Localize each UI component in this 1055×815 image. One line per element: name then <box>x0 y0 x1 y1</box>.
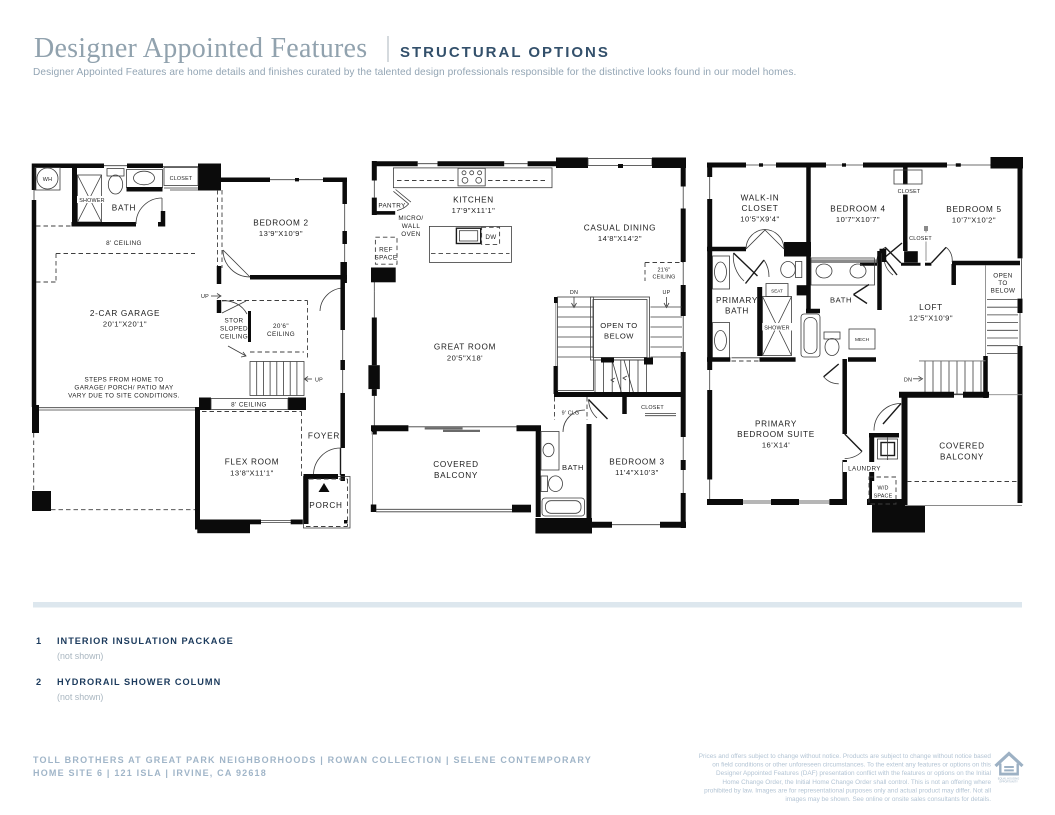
svg-text:BEDROOM 5: BEDROOM 5 <box>946 205 1001 214</box>
svg-text:BEDROOM 4: BEDROOM 4 <box>830 205 885 214</box>
svg-text:Designer Appointed Features (D: Designer Appointed Features (DAF) presen… <box>716 770 991 777</box>
svg-text:WALK-IN: WALK-IN <box>741 194 780 203</box>
svg-text:BEDROOM SUITE: BEDROOM SUITE <box>737 430 815 439</box>
svg-text:REF: REF <box>379 247 393 254</box>
svg-text:UP: UP <box>663 290 671 296</box>
svg-text:8' CEILING: 8' CEILING <box>106 240 142 247</box>
svg-text:10'5"X9'4": 10'5"X9'4" <box>740 215 779 224</box>
svg-text:GARAGE/ PORCH/ PATIO MAY: GARAGE/ PORCH/ PATIO MAY <box>74 385 174 392</box>
svg-text:UP: UP <box>315 378 323 384</box>
svg-text:20'5"X18': 20'5"X18' <box>447 354 483 363</box>
svg-text:COVERED: COVERED <box>433 460 478 469</box>
svg-text:INTERIOR INSULATION PACKAGE: INTERIOR INSULATION PACKAGE <box>57 636 234 646</box>
svg-text:CLOSET: CLOSET <box>909 236 932 242</box>
svg-text:12'5"X10'9": 12'5"X10'9" <box>909 314 953 323</box>
svg-text:OPPORTUNITY: OPPORTUNITY <box>999 780 1018 784</box>
svg-text:13'8"X11'1": 13'8"X11'1" <box>230 469 274 478</box>
svg-text:TO: TO <box>998 280 1007 287</box>
svg-text:20'1"X20'1": 20'1"X20'1" <box>103 320 147 329</box>
svg-text:W/D: W/D <box>877 486 888 492</box>
svg-text:CEILING: CEILING <box>220 334 248 341</box>
svg-text:GREAT ROOM: GREAT ROOM <box>434 343 496 352</box>
svg-text:MECH: MECH <box>855 337 870 343</box>
svg-text:STOR: STOR <box>225 318 244 325</box>
svg-text:CEILING: CEILING <box>653 275 676 281</box>
svg-text:20'6": 20'6" <box>273 323 289 330</box>
svg-text:BEDROOM 2: BEDROOM 2 <box>253 219 308 228</box>
svg-text:1: 1 <box>36 636 42 646</box>
svg-text:HYDRORAIL SHOWER COLUMN: HYDRORAIL SHOWER COLUMN <box>57 677 221 687</box>
svg-text:CLOSET: CLOSET <box>898 189 921 195</box>
svg-text:prohibited by law. Images are: prohibited by law. Images are for repres… <box>704 787 991 794</box>
svg-text:2-CAR GARAGE: 2-CAR GARAGE <box>90 309 160 318</box>
svg-text:Home Change Order, the Initial: Home Change Order, the Initial Home Chan… <box>722 779 991 786</box>
svg-text:WH: WH <box>43 177 52 183</box>
svg-text:DW: DW <box>485 234 496 241</box>
svg-text:DN: DN <box>570 290 578 296</box>
svg-text:PRIMARY: PRIMARY <box>716 296 758 305</box>
svg-text:OPEN: OPEN <box>993 273 1012 280</box>
svg-text:MICRO/: MICRO/ <box>398 215 423 222</box>
svg-text:BALCONY: BALCONY <box>940 453 984 462</box>
svg-text:21'6": 21'6" <box>658 268 671 274</box>
svg-text:VARY DUE TO SITE CONDITIONS.: VARY DUE TO SITE CONDITIONS. <box>68 393 180 400</box>
svg-text:BALCONY: BALCONY <box>434 471 478 480</box>
svg-text:FOYER: FOYER <box>308 432 340 441</box>
svg-text:CLOSET: CLOSET <box>742 204 779 213</box>
svg-text:UP: UP <box>201 294 209 300</box>
svg-text:13'9"X10'9": 13'9"X10'9" <box>259 229 303 238</box>
svg-text:BATH: BATH <box>725 307 749 316</box>
svg-text:BEDROOM 3: BEDROOM 3 <box>609 458 664 467</box>
svg-text:14'8"X14'2": 14'8"X14'2" <box>598 234 642 243</box>
svg-text:BATH: BATH <box>562 463 584 472</box>
svg-text:8' CEILING: 8' CEILING <box>231 402 267 409</box>
svg-text:WALL: WALL <box>402 223 421 230</box>
svg-text:CLOSET: CLOSET <box>170 176 193 182</box>
svg-text:SPACE: SPACE <box>375 255 398 262</box>
svg-text:10'7"X10'2": 10'7"X10'2" <box>952 216 996 225</box>
svg-text:SHOWER: SHOWER <box>764 326 789 332</box>
svg-text:DN: DN <box>904 378 912 384</box>
svg-text:FLEX ROOM: FLEX ROOM <box>225 458 280 467</box>
svg-text:2: 2 <box>36 677 42 687</box>
svg-text:Designer Appointed Features: Designer Appointed Features <box>34 33 367 64</box>
svg-text:COVERED: COVERED <box>939 442 984 451</box>
svg-text:HOME SITE 6 | 121 ISLA | IRVIN: HOME SITE 6 | 121 ISLA | IRVINE, CA 9261… <box>33 768 267 778</box>
svg-text:SHOWER: SHOWER <box>79 198 104 204</box>
svg-text:CASUAL DINING: CASUAL DINING <box>584 224 657 233</box>
svg-text:(not shown): (not shown) <box>57 651 103 661</box>
svg-text:Prices and offers subject to c: Prices and offers subject to change with… <box>699 753 992 760</box>
svg-text:KITCHEN: KITCHEN <box>453 196 494 205</box>
svg-text:on field conditions or other u: on field conditions or other unforeseen … <box>712 762 991 769</box>
svg-text:PORCH: PORCH <box>309 501 343 510</box>
svg-text:BELOW: BELOW <box>991 288 1016 295</box>
svg-text:SPACE: SPACE <box>874 494 893 500</box>
svg-text:SLOPED: SLOPED <box>220 326 248 333</box>
svg-text:CLOSET: CLOSET <box>641 405 664 411</box>
svg-text:PANTRY: PANTRY <box>378 203 406 210</box>
svg-text:BATH: BATH <box>112 204 136 213</box>
svg-text:images may be shown. See onlin: images may be shown. See online or onsit… <box>785 796 991 803</box>
svg-text:16'X14': 16'X14' <box>762 441 790 450</box>
svg-text:SEAT: SEAT <box>771 289 783 294</box>
svg-text:STRUCTURAL OPTIONS: STRUCTURAL OPTIONS <box>400 44 610 61</box>
svg-text:PRIMARY: PRIMARY <box>755 420 797 429</box>
svg-text:10'7"X10'7": 10'7"X10'7" <box>836 215 880 224</box>
svg-text:CEILING: CEILING <box>267 331 295 338</box>
svg-text:LAUNDRY: LAUNDRY <box>848 466 881 473</box>
svg-text:TOLL BROTHERS AT GREAT PARK NE: TOLL BROTHERS AT GREAT PARK NEIGHBORHOOD… <box>33 755 592 765</box>
svg-text:17'9"X11'1": 17'9"X11'1" <box>452 206 496 215</box>
svg-text:(not shown): (not shown) <box>57 692 103 702</box>
svg-text:BELOW: BELOW <box>604 332 634 341</box>
svg-text:Designer Appointed Features ar: Designer Appointed Features are home det… <box>33 67 796 78</box>
svg-text:BATH: BATH <box>830 296 852 305</box>
svg-text:OVEN: OVEN <box>401 231 420 238</box>
svg-text:LOFT: LOFT <box>919 303 943 312</box>
svg-text:STEPS FROM HOME TO: STEPS FROM HOME TO <box>84 377 163 384</box>
svg-text:OPEN TO: OPEN TO <box>600 321 637 330</box>
svg-text:11'4"X10'3": 11'4"X10'3" <box>615 468 659 477</box>
